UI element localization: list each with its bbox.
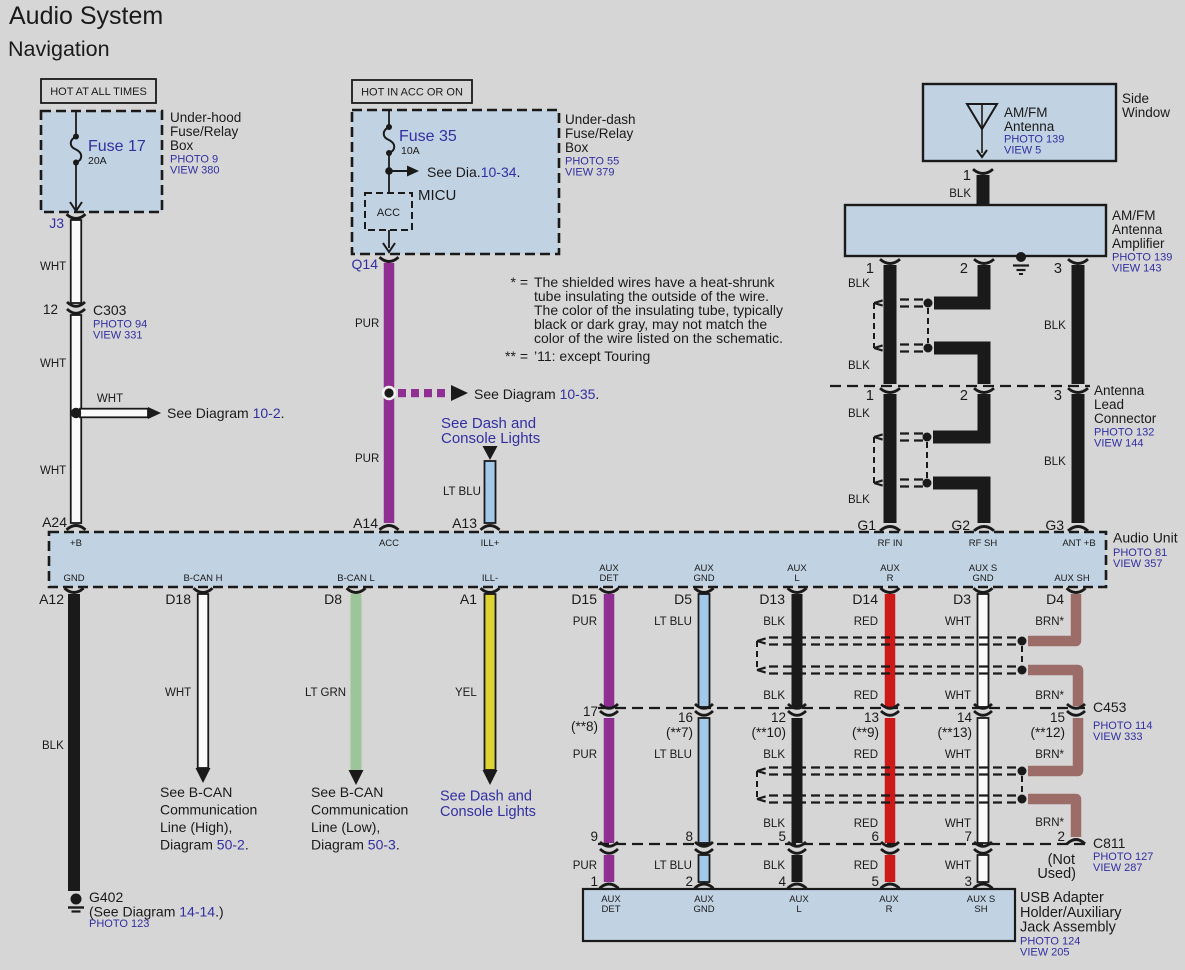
svg-text:See B-CAN: See B-CAN: [311, 784, 383, 800]
svg-text:GND: GND: [693, 573, 714, 584]
svg-text:VIEW 144: VIEW 144: [1094, 438, 1144, 450]
svg-text:G2: G2: [951, 517, 970, 533]
svg-text:L: L: [796, 904, 801, 915]
svg-text:Box: Box: [170, 138, 194, 153]
svg-text:** =: ** =: [505, 348, 528, 364]
svg-text:WHT: WHT: [945, 860, 971, 872]
svg-text:* =: * =: [510, 274, 528, 290]
svg-text:LT BLU: LT BLU: [654, 749, 692, 761]
svg-text:BLK: BLK: [763, 749, 785, 761]
svg-text:L: L: [794, 573, 799, 584]
svg-text:4: 4: [778, 874, 786, 889]
svg-text:LT BLU: LT BLU: [654, 860, 692, 872]
svg-text:A12: A12: [39, 591, 64, 607]
svg-text:BLK: BLK: [1044, 320, 1066, 332]
svg-text:12: 12: [43, 302, 58, 317]
svg-text:D15: D15: [571, 591, 597, 607]
svg-text:Communication: Communication: [160, 802, 257, 818]
svg-text:(**10): (**10): [751, 725, 786, 740]
svg-text:(**7): (**7): [666, 725, 693, 740]
svg-text:See Diagram 10-35.: See Diagram 10-35.: [474, 386, 599, 402]
svg-text:RED: RED: [854, 860, 878, 872]
svg-text:BLK: BLK: [949, 188, 971, 200]
svg-text:Communication: Communication: [311, 802, 408, 818]
svg-text:3: 3: [1054, 388, 1062, 404]
svg-text:WHT: WHT: [165, 687, 191, 699]
svg-text:R: R: [887, 573, 894, 584]
svg-text:Console Lights: Console Lights: [441, 430, 540, 447]
svg-text:PUR: PUR: [355, 453, 379, 465]
svg-text:10A: 10A: [401, 145, 420, 157]
svg-text:Antenna: Antenna: [1112, 222, 1163, 237]
svg-text:Q14: Q14: [352, 256, 379, 272]
svg-text:5: 5: [871, 874, 879, 889]
svg-text:WHT: WHT: [945, 616, 971, 628]
svg-text:3: 3: [1054, 261, 1062, 277]
svg-text:Diagram 50-3.: Diagram 50-3.: [311, 837, 400, 853]
svg-text:RF IN: RF IN: [878, 538, 903, 549]
svg-text:Window: Window: [1122, 105, 1170, 120]
svg-text:Console Lights: Console Lights: [440, 804, 536, 820]
svg-text:C453: C453: [1093, 699, 1127, 715]
svg-text:BLK: BLK: [42, 740, 64, 752]
svg-text:Fuse/Relay: Fuse/Relay: [565, 126, 634, 141]
svg-text:G3: G3: [1045, 517, 1064, 533]
svg-text:ILL+: ILL+: [481, 538, 500, 549]
svg-text:C811: C811: [1093, 835, 1126, 851]
svg-text:YEL: YEL: [455, 687, 477, 699]
svg-text:RED: RED: [854, 616, 878, 628]
svg-text:Under-hood: Under-hood: [170, 110, 241, 125]
svg-text:Fuse/Relay: Fuse/Relay: [170, 124, 239, 139]
svg-text:D14: D14: [852, 591, 878, 607]
svg-text:ACC: ACC: [379, 538, 399, 549]
svg-text:GND: GND: [693, 904, 714, 915]
svg-text:J3: J3: [49, 215, 64, 231]
svg-text:VIEW 205: VIEW 205: [1020, 947, 1070, 959]
svg-text:VIEW 143: VIEW 143: [1112, 263, 1162, 275]
svg-text:B-CAN L: B-CAN L: [337, 573, 374, 584]
svg-text:B-CAN H: B-CAN H: [183, 573, 222, 584]
svg-text:1: 1: [866, 261, 874, 277]
svg-text:AUX SH: AUX SH: [1054, 573, 1090, 584]
svg-text:Fuse 35: Fuse 35: [399, 128, 457, 145]
svg-text:Antenna: Antenna: [1094, 383, 1145, 398]
svg-text:BLK: BLK: [848, 494, 870, 506]
svg-text:Antenna: Antenna: [1004, 119, 1055, 134]
svg-text:Navigation: Navigation: [8, 37, 110, 61]
svg-text:Fuse 17: Fuse 17: [88, 138, 146, 155]
svg-text:8: 8: [685, 829, 693, 844]
svg-text:AM/FM: AM/FM: [1004, 105, 1048, 120]
svg-text:WHT: WHT: [945, 690, 971, 702]
svg-text:(**8): (**8): [571, 719, 598, 734]
svg-text:13: 13: [864, 710, 879, 725]
svg-text:BRN*: BRN*: [1035, 616, 1064, 628]
svg-text:16: 16: [678, 710, 693, 725]
svg-text:Line (High),: Line (High),: [160, 819, 232, 835]
svg-text:2: 2: [685, 874, 693, 889]
svg-text:WHT: WHT: [945, 749, 971, 761]
svg-text:AM/FM: AM/FM: [1112, 208, 1156, 223]
svg-text:RF SH: RF SH: [969, 538, 998, 549]
svg-text:VIEW 287: VIEW 287: [1093, 862, 1143, 874]
svg-text:VIEW 379: VIEW 379: [565, 167, 615, 179]
svg-text:DET: DET: [602, 904, 621, 915]
svg-text:’11: except Touring: ’11: except Touring: [534, 348, 650, 364]
svg-text:2: 2: [960, 388, 968, 404]
svg-text:17: 17: [583, 704, 598, 719]
svg-text:2: 2: [1057, 829, 1065, 844]
svg-text:Connector: Connector: [1094, 411, 1157, 426]
svg-text:Used): Used): [1037, 866, 1076, 882]
svg-text:Audio Unit: Audio Unit: [1113, 530, 1178, 546]
svg-text:BLK: BLK: [848, 278, 870, 290]
svg-text:USB Adapter: USB Adapter: [1020, 890, 1104, 906]
svg-text:HOT AT ALL TIMES: HOT AT ALL TIMES: [50, 86, 147, 98]
svg-text:See Diagram 10-2.: See Diagram 10-2.: [167, 405, 285, 421]
svg-text:VIEW 333: VIEW 333: [1093, 731, 1143, 743]
svg-text:DET: DET: [600, 573, 619, 584]
svg-text:A1: A1: [460, 591, 477, 607]
svg-text:GND: GND: [972, 573, 993, 584]
svg-text:BLK: BLK: [763, 860, 785, 872]
svg-text:Audio System: Audio System: [9, 2, 163, 30]
svg-text:(**9): (**9): [852, 725, 879, 740]
svg-text:Lead: Lead: [1094, 397, 1124, 412]
svg-text:MICU: MICU: [418, 187, 456, 204]
svg-text:(**13): (**13): [937, 725, 972, 740]
svg-text:D18: D18: [165, 591, 191, 607]
svg-text:14: 14: [957, 710, 973, 725]
svg-text:Under-dash: Under-dash: [565, 112, 636, 127]
svg-text:3: 3: [964, 874, 972, 889]
svg-text:7: 7: [964, 829, 972, 844]
svg-text:ANT +B: ANT +B: [1062, 538, 1095, 549]
svg-text:Line (Low),: Line (Low),: [311, 819, 380, 835]
svg-text:WHT: WHT: [40, 261, 66, 273]
svg-text:BLK: BLK: [848, 408, 870, 420]
svg-text:LT GRN: LT GRN: [305, 687, 346, 699]
svg-text:2: 2: [960, 261, 968, 277]
svg-text:BLK: BLK: [763, 616, 785, 628]
svg-text:BRN*: BRN*: [1035, 817, 1064, 829]
svg-text:SH: SH: [974, 904, 987, 915]
svg-text:D8: D8: [324, 591, 342, 607]
svg-text:VIEW 357: VIEW 357: [1113, 558, 1163, 570]
svg-text:PUR: PUR: [573, 860, 597, 872]
svg-text:BLK: BLK: [763, 690, 785, 702]
svg-text:RED: RED: [854, 749, 878, 761]
svg-text:ILL-: ILL-: [482, 573, 498, 584]
svg-text:G1: G1: [857, 517, 876, 533]
svg-text:(**12): (**12): [1030, 725, 1065, 740]
svg-text:WHT: WHT: [97, 393, 123, 405]
svg-text:20A: 20A: [88, 155, 107, 167]
svg-text:See Dia.10-34.: See Dia.10-34.: [427, 164, 520, 180]
svg-text:+B: +B: [70, 538, 82, 549]
svg-text:Jack Assembly: Jack Assembly: [1020, 920, 1117, 936]
svg-text:D3: D3: [953, 591, 971, 607]
svg-text:C303: C303: [93, 302, 127, 318]
svg-text:VIEW 380: VIEW 380: [170, 165, 220, 177]
svg-text:D5: D5: [674, 591, 692, 607]
svg-text:6: 6: [871, 829, 879, 844]
svg-text:R: R: [886, 904, 893, 915]
svg-text:PHOTO 123: PHOTO 123: [89, 918, 149, 930]
svg-text:VIEW 5: VIEW 5: [1004, 145, 1041, 157]
svg-text:12: 12: [771, 710, 786, 725]
svg-text:GND: GND: [63, 573, 84, 584]
svg-text:See B-CAN: See B-CAN: [160, 784, 232, 800]
svg-text:1: 1: [963, 168, 971, 184]
svg-text:A14: A14: [353, 515, 378, 531]
svg-text:PUR: PUR: [573, 749, 597, 761]
svg-text:RED: RED: [854, 690, 878, 702]
svg-text:9: 9: [590, 829, 598, 844]
svg-text:See Dash and: See Dash and: [440, 789, 532, 805]
svg-text:HOT IN ACC OR ON: HOT IN ACC OR ON: [361, 87, 463, 99]
svg-text:PUR: PUR: [573, 616, 597, 628]
svg-text:BRN*: BRN*: [1035, 749, 1064, 761]
svg-text:Side: Side: [1122, 91, 1149, 106]
svg-text:Amplifier: Amplifier: [1112, 236, 1165, 251]
svg-text:5: 5: [778, 829, 786, 844]
svg-text:BLK: BLK: [848, 360, 870, 372]
svg-text:A24: A24: [42, 514, 67, 530]
svg-text:ACC: ACC: [377, 207, 400, 219]
svg-text:BRN*: BRN*: [1035, 690, 1064, 702]
svg-text:Box: Box: [565, 140, 589, 155]
svg-text:PUR: PUR: [355, 318, 379, 330]
svg-text:VIEW 331: VIEW 331: [93, 330, 143, 342]
svg-text:1: 1: [590, 874, 598, 889]
svg-text:color of the wire listed on th: color of the wire listed on the schemati…: [534, 330, 783, 346]
svg-text:LT BLU: LT BLU: [443, 486, 481, 498]
svg-text:LT BLU: LT BLU: [654, 616, 692, 628]
svg-text:D4: D4: [1046, 591, 1064, 607]
svg-text:WHT: WHT: [40, 358, 66, 370]
svg-text:WHT: WHT: [40, 465, 66, 477]
svg-text:BLK: BLK: [1044, 456, 1066, 468]
svg-text:1: 1: [866, 388, 874, 404]
svg-text:A13: A13: [452, 515, 477, 531]
svg-text:Diagram 50-2.: Diagram 50-2.: [160, 837, 249, 853]
svg-text:15: 15: [1050, 710, 1065, 725]
svg-text:D13: D13: [759, 591, 785, 607]
